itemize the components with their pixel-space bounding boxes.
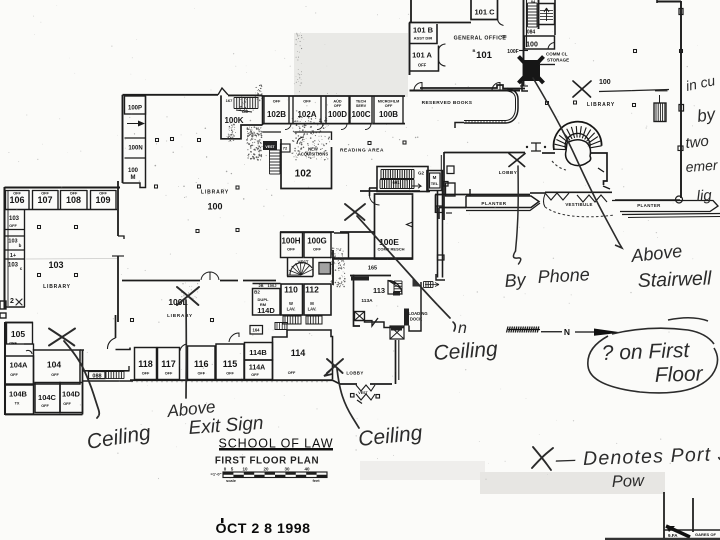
svg-text:PLANTER: PLANTER <box>637 203 661 208</box>
svg-text:114B: 114B <box>249 348 267 357</box>
svg-text:Floor: Floor <box>654 362 704 387</box>
svg-text:LAV.: LAV. <box>287 307 296 312</box>
svg-text:30: 30 <box>284 467 290 472</box>
svg-text:TX: TX <box>15 402 20 406</box>
svg-text:? on First: ? on First <box>601 339 690 365</box>
svg-text:103: 103 <box>8 263 19 269</box>
svg-text:20: 20 <box>263 467 269 472</box>
svg-text:LIBRARY: LIBRARY <box>43 284 71 290</box>
svg-text:115: 115 <box>223 359 238 369</box>
svg-text:113: 113 <box>373 286 385 295</box>
svg-text:OFF: OFF <box>70 192 78 196</box>
svg-text:165: 165 <box>368 266 377 272</box>
svg-text:101 C: 101 C <box>474 8 495 17</box>
svg-text:114: 114 <box>291 348 306 358</box>
svg-text:100E: 100E <box>379 237 399 247</box>
svg-text:100B: 100B <box>379 110 398 119</box>
svg-text:101 A: 101 A <box>412 51 432 60</box>
svg-text:10: 10 <box>242 467 248 472</box>
svg-text:103: 103 <box>9 216 20 222</box>
svg-text:OFF: OFF <box>9 224 17 228</box>
svg-text:OFF: OFF <box>303 100 311 104</box>
svg-text:OFF: OFF <box>10 373 18 377</box>
svg-text:OFF: OFF <box>288 371 296 375</box>
svg-text:OFF: OFF <box>197 372 205 376</box>
svg-text:104D: 104D <box>62 390 81 399</box>
svg-text:feet: feet <box>312 478 320 483</box>
svg-text:84: 84 <box>531 0 536 4</box>
svg-text:601: 601 <box>393 180 401 185</box>
svg-text:OFF: OFF <box>142 372 150 376</box>
svg-text:100D: 100D <box>328 110 347 119</box>
svg-text:M: M <box>433 175 437 180</box>
svg-text:LOBBY: LOBBY <box>499 170 518 175</box>
svg-text:OFF: OFF <box>226 372 234 376</box>
svg-text:VEST: VEST <box>358 391 368 395</box>
svg-text:107: 107 <box>37 195 52 205</box>
svg-text:SERV: SERV <box>356 104 367 108</box>
svg-text:2B: 2B <box>258 283 263 288</box>
svg-text:Pow: Pow <box>612 472 646 491</box>
svg-text:OFF: OFF <box>41 192 49 196</box>
svg-text:OFF: OFF <box>273 100 281 104</box>
svg-text:40: 40 <box>304 467 310 472</box>
svg-text:LIBRARY: LIBRARY <box>201 190 229 196</box>
svg-text:GARES OF: GARES OF <box>695 532 716 537</box>
svg-text:AUD: AUD <box>333 100 341 104</box>
svg-text:CE: CE <box>501 34 507 39</box>
svg-text:READING AREA: READING AREA <box>340 148 384 154</box>
svg-text:ASST DIR: ASST DIR <box>414 36 433 41</box>
svg-text:lig: lig <box>696 187 713 205</box>
svg-text:112: 112 <box>305 285 319 295</box>
svg-text:114A: 114A <box>249 365 265 372</box>
svg-text:N: N <box>564 327 570 337</box>
svg-text:OFF: OFF <box>9 342 17 346</box>
svg-text:116: 116 <box>194 359 209 369</box>
svg-text:OFF: OFF <box>313 247 322 252</box>
svg-text:103: 103 <box>48 260 63 270</box>
svg-text:164: 164 <box>253 328 261 333</box>
svg-text:108: 108 <box>66 195 81 205</box>
svg-text:STORAGE: STORAGE <box>547 58 569 63</box>
svg-text:TEL: TEL <box>431 181 439 186</box>
svg-text:105: 105 <box>11 329 25 339</box>
svg-text:084: 084 <box>527 30 536 36</box>
svg-text:100: 100 <box>526 42 538 49</box>
svg-text:100H: 100H <box>281 237 300 246</box>
svg-text:113A: 113A <box>361 298 373 304</box>
svg-text:scale: scale <box>226 478 237 483</box>
svg-text:b: b <box>19 243 22 248</box>
svg-text:118: 118 <box>138 359 153 369</box>
svg-text:100F: 100F <box>507 49 518 55</box>
svg-text:104B: 104B <box>9 390 28 399</box>
svg-text:102B: 102B <box>267 110 286 119</box>
svg-text:RESERVED BOOKS: RESERVED BOOKS <box>422 100 473 106</box>
svg-text:109: 109 <box>95 195 110 205</box>
svg-text:9.FA: 9.FA <box>668 533 678 538</box>
svg-text:LIBRARY: LIBRARY <box>167 313 193 318</box>
svg-text:OFF: OFF <box>418 63 427 68</box>
svg-text:Phone: Phone <box>537 264 590 287</box>
svg-text:OFF: OFF <box>51 373 59 377</box>
svg-text:104C: 104C <box>38 393 57 402</box>
svg-text:two: two <box>685 133 710 152</box>
svg-text:117: 117 <box>161 359 176 369</box>
svg-text:OFF: OFF <box>63 402 71 406</box>
svg-text:100: 100 <box>599 79 611 86</box>
svg-text:2: 2 <box>10 298 14 305</box>
svg-text:VESTIBULE: VESTIBULE <box>565 202 592 207</box>
svg-text:OFF: OFF <box>287 247 296 252</box>
svg-text:LIBRARY: LIBRARY <box>587 102 615 108</box>
svg-text:100G: 100G <box>307 237 327 246</box>
svg-text:103: 103 <box>8 239 17 245</box>
svg-text:COMP RESCH: COMP RESCH <box>377 247 404 252</box>
svg-text:101 B: 101 B <box>413 26 434 35</box>
svg-text:PLANTER: PLANTER <box>481 201 506 206</box>
svg-text:B: B <box>473 48 476 53</box>
svg-text:OFF: OFF <box>165 372 173 376</box>
svg-text:OFF: OFF <box>385 104 393 108</box>
svg-text:LOADING: LOADING <box>408 311 427 316</box>
svg-text:GENERAL OFFICE: GENERAL OFFICE <box>454 36 507 42</box>
svg-text:100: 100 <box>128 168 139 174</box>
svg-text:LAV.: LAV. <box>308 307 317 312</box>
svg-text:=1'-0": =1'-0" <box>211 472 222 477</box>
svg-text:G2: G2 <box>418 171 425 176</box>
svg-text:104: 104 <box>47 360 61 370</box>
svg-text:OFF: OFF <box>251 373 259 377</box>
svg-text:Stairwell: Stairwell <box>637 267 712 292</box>
svg-text:102: 102 <box>295 169 312 180</box>
svg-text:72: 72 <box>283 146 288 151</box>
svg-text:110: 110 <box>284 285 298 295</box>
svg-text:By: By <box>504 270 527 291</box>
svg-text:COMM CL: COMM CL <box>546 52 568 57</box>
svg-text:100C: 100C <box>351 110 370 119</box>
svg-text:Ceiling: Ceiling <box>433 338 499 365</box>
svg-text:106: 106 <box>9 195 24 205</box>
svg-text:100P: 100P <box>128 106 142 112</box>
svg-text:088: 088 <box>92 373 101 379</box>
svg-text:M: M <box>310 301 314 306</box>
svg-text:FIRST FLOOR PLAN: FIRST FLOOR PLAN <box>215 456 319 467</box>
svg-text:101: 101 <box>476 50 493 61</box>
svg-text:OFF: OFF <box>41 404 49 408</box>
svg-text:114D: 114D <box>257 306 275 315</box>
svg-text:OFF: OFF <box>99 192 107 196</box>
svg-text:emer: emer <box>685 157 719 175</box>
svg-text:n: n <box>458 320 467 337</box>
svg-text:B2: B2 <box>254 290 260 295</box>
svg-text:100N: 100N <box>128 146 142 152</box>
svg-text:OCT 2 8 1998: OCT 2 8 1998 <box>215 521 310 537</box>
svg-text:W: W <box>289 301 293 306</box>
svg-text:TECH: TECH <box>356 100 367 104</box>
svg-text:LOBBY: LOBBY <box>346 371 363 376</box>
svg-text:OFF: OFF <box>13 192 21 196</box>
svg-text:100: 100 <box>207 202 222 212</box>
svg-text:104A: 104A <box>10 361 29 370</box>
svg-text:1+: 1+ <box>10 253 16 259</box>
svg-text:OFF: OFF <box>334 104 342 108</box>
svg-text:VEST: VEST <box>265 145 275 149</box>
svg-text:100J: 100J <box>268 283 277 288</box>
svg-text:MICROFILM: MICROFILM <box>378 100 400 104</box>
svg-text:167: 167 <box>226 98 233 103</box>
svg-text:M: M <box>131 175 136 181</box>
